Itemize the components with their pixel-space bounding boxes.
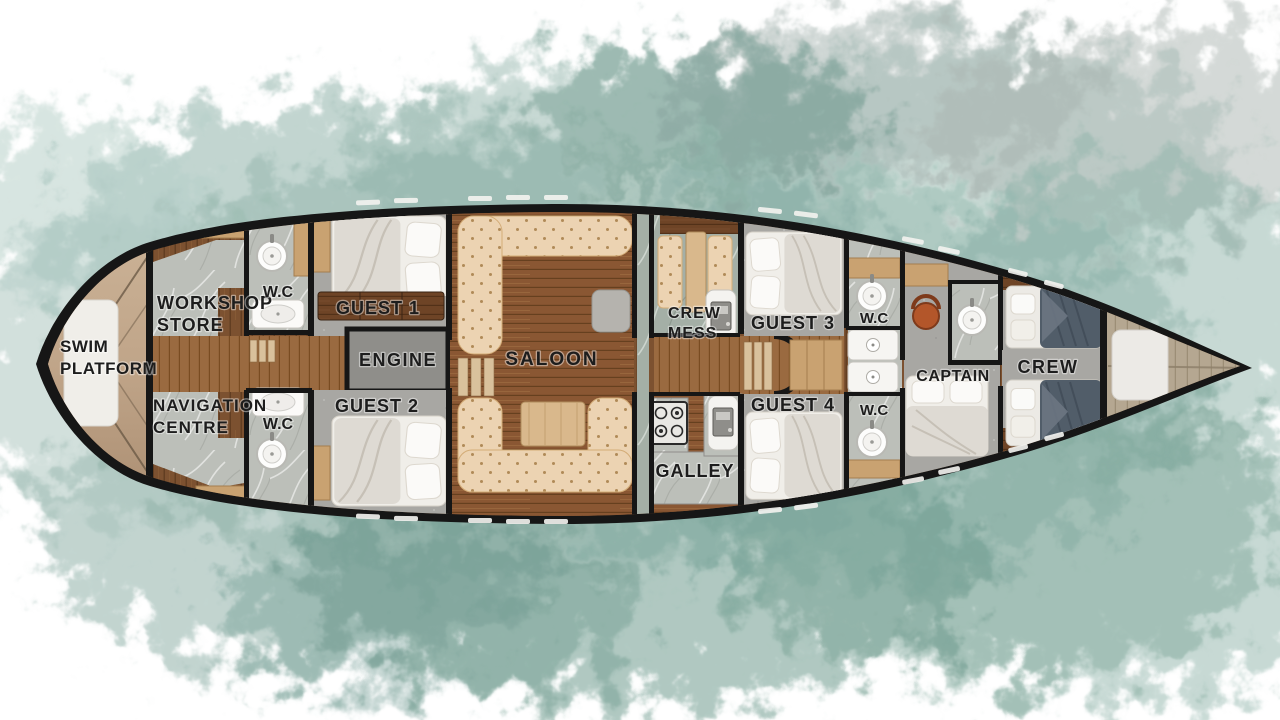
shower-icon: [848, 330, 898, 360]
saloon-label: SALOON: [505, 349, 598, 370]
guest2-label: GUEST 2: [335, 396, 419, 416]
captain-desk: [904, 264, 948, 286]
aft-corridor-steps: [744, 342, 772, 390]
bow-hatch: [1112, 330, 1168, 400]
guest4-bed: [746, 412, 842, 499]
porthole: [468, 518, 492, 523]
aft-cabinet: [790, 340, 842, 390]
yacht-deck-plan: SWIM PLATFORM WORKSHOP STORE NAVIGATION …: [0, 0, 1280, 720]
swim-platform-label-line1: SWIM: [60, 337, 108, 356]
captain-chair: [913, 303, 939, 329]
engine-label: ENGINE: [359, 350, 437, 370]
porthole: [356, 200, 380, 206]
galley-sink-appliance-icon: [708, 396, 738, 450]
porthole: [506, 195, 530, 200]
swim-platform-label-line2: PLATFORM: [60, 359, 157, 378]
guest1-bed: [332, 216, 446, 303]
wc-fore-bottom-label: W.C: [263, 416, 294, 433]
porthole: [544, 195, 568, 200]
guest1-label: GUEST 1: [336, 298, 420, 318]
porthole: [506, 519, 530, 524]
wc-counter: [848, 460, 900, 478]
saloon-coffee-table: [521, 402, 585, 446]
stove-icon: [651, 402, 687, 444]
crew-mess-table: [686, 232, 706, 312]
crew-mess-label-line1: CREW: [668, 305, 721, 322]
saloon-side-table: [592, 290, 630, 332]
porthole: [394, 198, 418, 203]
guest1-bedside-cabinet: [312, 218, 330, 272]
porthole: [544, 519, 568, 524]
side-passage-strip: [637, 210, 649, 518]
galley-label: GALLEY: [655, 461, 734, 481]
wc-aft-bottom-label: W.C: [860, 402, 888, 419]
crew-mess-label-line2: MESS: [668, 325, 717, 342]
guest3-bed: [746, 232, 842, 315]
shower-icon: [848, 362, 898, 392]
guest3-label: GUEST 3: [751, 313, 835, 333]
crew-label: CREW: [1018, 357, 1079, 377]
crew-mess-bench: [658, 236, 682, 308]
fore-corridor-steps: [250, 340, 275, 362]
guest2-bed: [332, 416, 446, 506]
navigation-centre-label-line1: NAVIGATION: [153, 396, 267, 415]
guest2-bedside-cabinet: [312, 446, 330, 500]
wc-counter: [848, 258, 900, 278]
saloon-steps: [458, 358, 494, 396]
wc-fore-top-label: W.C: [263, 284, 294, 301]
porthole: [356, 514, 380, 520]
captain-bathroom-wall: [948, 360, 1002, 365]
workshop-store-label-line2: STORE: [157, 315, 224, 335]
workshop-store-label-line1: WORKSHOP: [157, 293, 273, 313]
wc-aft-top-label: W.C: [860, 310, 888, 327]
guest4-label: GUEST 4: [751, 395, 835, 415]
captain-bed: [906, 376, 988, 456]
porthole: [394, 516, 418, 521]
navigation-centre-label-line2: CENTRE: [153, 418, 229, 437]
captain-label: CAPTAIN: [916, 368, 989, 385]
porthole: [468, 196, 492, 201]
